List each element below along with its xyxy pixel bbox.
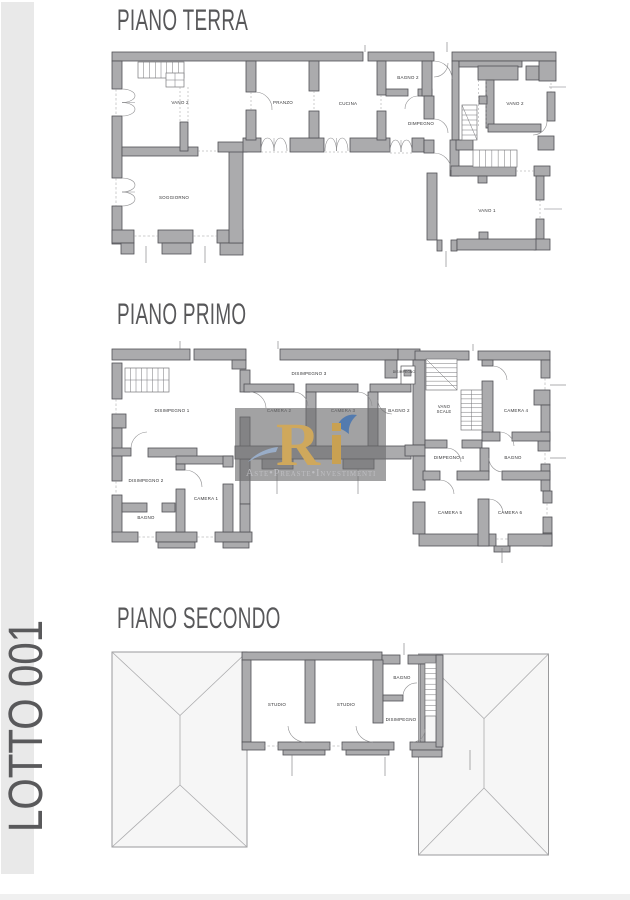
svg-text:CAMERA 5: CAMERA 5	[438, 510, 463, 515]
svg-text:STUDIO: STUDIO	[268, 702, 287, 707]
svg-text:PIANO SECONDO: PIANO SECONDO	[117, 602, 281, 636]
svg-text:DIMPEGNO: DIMPEGNO	[408, 121, 434, 126]
svg-text:PIANO PRIMO: PIANO PRIMO	[117, 298, 246, 332]
svg-text:SOGGIORNO: SOGGIORNO	[159, 195, 189, 200]
svg-text:BAGNO: BAGNO	[504, 455, 522, 460]
svg-text:STUDIO: STUDIO	[337, 702, 356, 707]
svg-text:BAGNO: BAGNO	[393, 675, 411, 680]
svg-text:VANO 2: VANO 2	[171, 100, 189, 105]
svg-text:Aste•Preaste•Investimenti: Aste•Preaste•Investimenti	[246, 468, 376, 479]
svg-text:LOTTO 001: LOTTO 001	[0, 620, 53, 832]
svg-text:VANO 1: VANO 1	[478, 208, 496, 213]
svg-text:BAGNO 2: BAGNO 2	[388, 408, 410, 413]
svg-text:VANO 2: VANO 2	[506, 101, 524, 106]
svg-text:BAGNO: BAGNO	[137, 515, 155, 520]
svg-text:PRANZO: PRANZO	[273, 100, 293, 105]
svg-text:CUCINA: CUCINA	[339, 101, 357, 106]
svg-text:DISIMPEGNO: DISIMPEGNO	[386, 717, 417, 722]
svg-text:PIANO TERRA: PIANO TERRA	[117, 4, 248, 38]
svg-text:DISIMPEGNO 1: DISIMPEGNO 1	[155, 408, 190, 413]
svg-text:DISIMPEGNO 2: DISIMPEGNO 2	[129, 478, 164, 483]
svg-text:CAMERA 4: CAMERA 4	[504, 408, 529, 413]
svg-text:DIMPEGNO 4: DIMPEGNO 4	[434, 455, 465, 460]
svg-text:DISIMPEGNO 3: DISIMPEGNO 3	[292, 371, 327, 376]
svg-text:CAMERA 1: CAMERA 1	[194, 496, 219, 501]
svg-text:DISIMPEGNO: DISIMPEGNO	[393, 370, 416, 374]
svg-text:SCALE: SCALE	[437, 409, 452, 414]
svg-text:CAMERA 6: CAMERA 6	[498, 510, 523, 515]
svg-text:BAGNO 2: BAGNO 2	[397, 75, 419, 80]
